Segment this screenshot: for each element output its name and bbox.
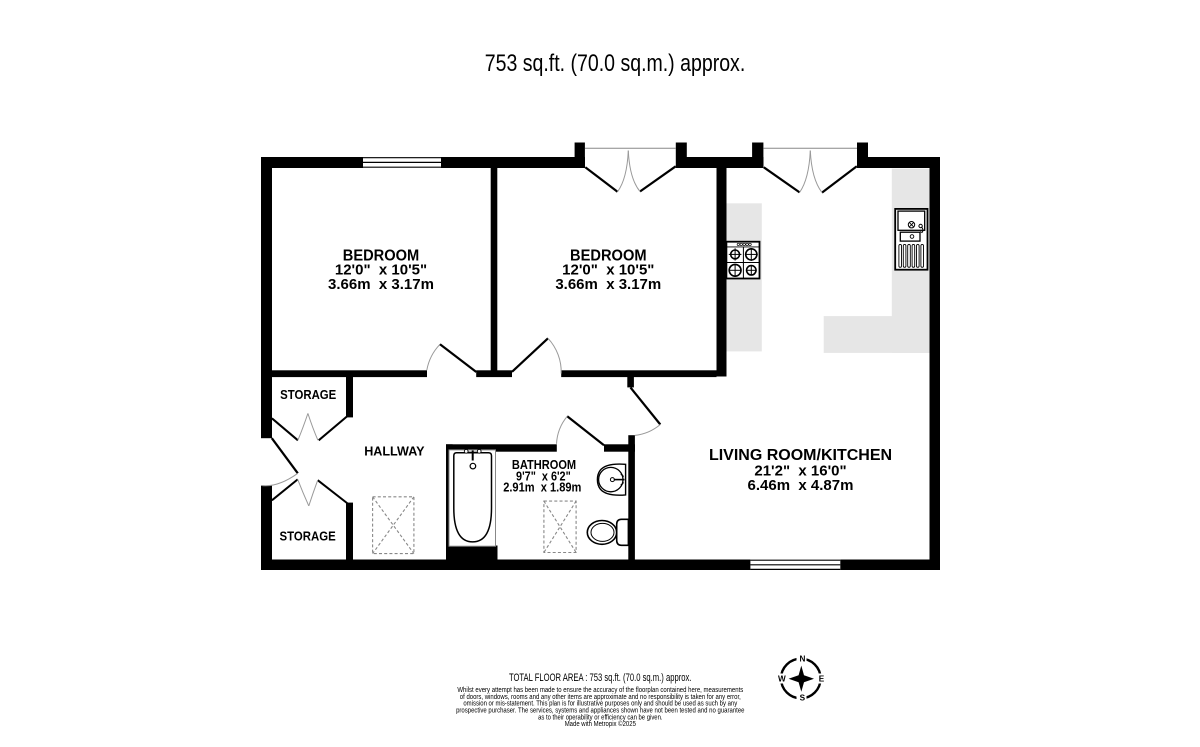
svg-text:HALLWAY: HALLWAY: [364, 444, 425, 459]
svg-text:N: N: [799, 655, 805, 664]
svg-text:STORAGE: STORAGE: [280, 387, 336, 402]
svg-text:2.91m x 1.89m: 2.91m x 1.89m: [503, 480, 581, 494]
svg-text:STORAGE: STORAGE: [280, 529, 336, 544]
svg-text:3.66m x 3.17m: 3.66m x 3.17m: [555, 276, 661, 293]
svg-text:3.66m x 3.17m: 3.66m x 3.17m: [328, 276, 434, 293]
svg-text:753 sq.ft. (70.0 sq.m.) approx: 753 sq.ft. (70.0 sq.m.) approx.: [485, 50, 746, 77]
svg-text:W: W: [778, 675, 786, 684]
svg-text:S: S: [800, 693, 806, 702]
svg-text:E: E: [819, 675, 825, 684]
svg-text:Made with Metropix ©2025: Made with Metropix ©2025: [565, 719, 636, 728]
svg-text:6.46m x 4.87m: 6.46m x 4.87m: [748, 477, 854, 494]
svg-text:LIVING ROOM/KITCHEN: LIVING ROOM/KITCHEN: [709, 447, 892, 464]
svg-text:TOTAL FLOOR AREA : 753 sq.ft.: TOTAL FLOOR AREA : 753 sq.ft. (70.0 sq.m…: [509, 672, 692, 684]
